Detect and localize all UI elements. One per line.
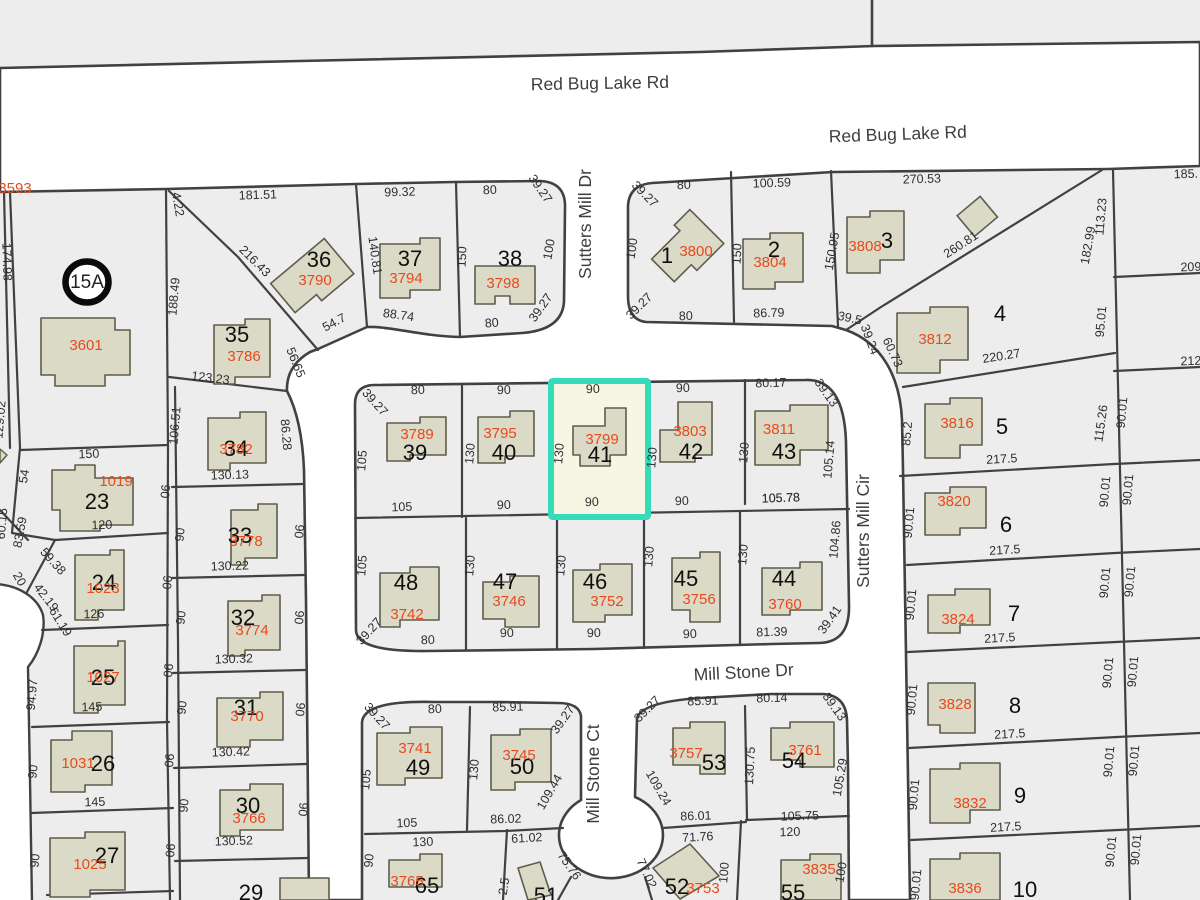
svg-text:1027: 1027: [86, 669, 119, 686]
svg-text:15A: 15A: [70, 272, 104, 293]
svg-text:90: 90: [161, 753, 176, 768]
svg-text:3752: 3752: [590, 593, 623, 610]
svg-text:95.01: 95.01: [1093, 305, 1110, 337]
svg-text:3798: 3798: [486, 275, 519, 292]
svg-text:90.01: 90.01: [1128, 833, 1145, 865]
svg-text:3765: 3765: [390, 873, 423, 890]
svg-text:217.5: 217.5: [994, 726, 1026, 742]
svg-text:3795: 3795: [483, 425, 516, 442]
svg-text:80: 80: [411, 383, 425, 397]
svg-text:3835: 3835: [802, 861, 835, 878]
svg-text:3811: 3811: [763, 421, 795, 438]
svg-text:3803: 3803: [673, 423, 706, 440]
svg-text:3778: 3778: [229, 533, 262, 550]
svg-text:181.51: 181.51: [239, 187, 278, 202]
svg-text:90.01: 90.01: [1125, 655, 1142, 687]
svg-text:90.01: 90.01: [1101, 745, 1118, 777]
svg-text:80: 80: [679, 309, 693, 323]
svg-text:150: 150: [78, 447, 99, 462]
svg-text:81.39: 81.39: [756, 624, 788, 639]
svg-text:86.79: 86.79: [753, 305, 785, 320]
svg-text:130: 130: [641, 546, 657, 568]
svg-text:90: 90: [157, 484, 172, 499]
svg-text:46: 46: [583, 569, 607, 594]
svg-text:105.75: 105.75: [781, 808, 820, 823]
svg-text:85.91: 85.91: [492, 699, 524, 714]
svg-text:217.5: 217.5: [986, 451, 1018, 467]
svg-text:90: 90: [292, 702, 307, 717]
svg-text:90: 90: [176, 798, 191, 813]
svg-text:174.98: 174.98: [0, 243, 15, 282]
svg-text:185.: 185.: [1173, 167, 1198, 182]
svg-text:217.5: 217.5: [989, 542, 1021, 558]
svg-text:90.01: 90.01: [904, 683, 921, 715]
svg-text:94.97: 94.97: [24, 678, 41, 710]
svg-text:90.01: 90.01: [1097, 475, 1114, 507]
svg-text:2.5: 2.5: [496, 876, 513, 896]
svg-text:3745: 3745: [502, 747, 535, 764]
svg-text:3770: 3770: [230, 708, 263, 725]
svg-text:90: 90: [497, 498, 511, 512]
svg-text:90.01: 90.01: [903, 588, 920, 620]
svg-text:90: 90: [160, 663, 175, 678]
svg-text:48: 48: [394, 570, 418, 595]
svg-text:3742: 3742: [390, 606, 423, 623]
svg-text:3746: 3746: [492, 593, 525, 610]
svg-text:130.42: 130.42: [212, 744, 251, 759]
svg-text:90: 90: [587, 626, 601, 640]
svg-text:270.53: 270.53: [903, 171, 942, 186]
svg-text:3816: 3816: [940, 415, 973, 432]
svg-text:1031: 1031: [61, 755, 94, 772]
svg-text:120: 120: [779, 825, 800, 840]
svg-text:90: 90: [676, 381, 690, 395]
svg-text:130.13: 130.13: [211, 467, 250, 482]
svg-text:6: 6: [1000, 512, 1012, 537]
svg-text:90: 90: [27, 853, 42, 868]
svg-text:40: 40: [492, 440, 516, 465]
svg-text:3800: 3800: [679, 243, 712, 260]
svg-text:217.5: 217.5: [984, 630, 1016, 646]
svg-text:105: 105: [354, 555, 370, 577]
svg-text:86.01: 86.01: [680, 808, 712, 823]
svg-text:130: 130: [644, 447, 660, 469]
svg-text:86.02: 86.02: [490, 811, 522, 826]
svg-text:8: 8: [1009, 693, 1021, 718]
svg-text:3820: 3820: [937, 493, 970, 510]
svg-text:90: 90: [162, 843, 177, 858]
svg-text:85.91: 85.91: [687, 693, 719, 708]
svg-text:90: 90: [174, 700, 189, 715]
svg-text:130: 130: [466, 759, 482, 781]
svg-text:90: 90: [361, 853, 376, 868]
svg-text:3808: 3808: [848, 238, 881, 255]
svg-text:7: 7: [1008, 601, 1020, 626]
svg-text:120: 120: [91, 518, 112, 533]
svg-text:80: 80: [677, 178, 691, 192]
svg-text:55: 55: [781, 880, 805, 900]
svg-text:3761: 3761: [788, 742, 821, 759]
svg-text:9: 9: [1014, 783, 1026, 808]
svg-text:130: 130: [736, 442, 752, 464]
svg-text:29: 29: [239, 880, 263, 900]
svg-text:90.01: 90.01: [1103, 835, 1120, 867]
svg-text:90: 90: [25, 764, 40, 779]
svg-text:90: 90: [683, 627, 697, 641]
svg-text:130.52: 130.52: [215, 833, 254, 848]
svg-text:130: 130: [462, 555, 478, 577]
svg-text:209: 209: [1180, 260, 1200, 275]
svg-text:130: 130: [553, 555, 569, 577]
svg-text:3: 3: [881, 228, 893, 253]
svg-text:105: 105: [396, 816, 417, 831]
svg-text:100: 100: [716, 862, 732, 884]
svg-text:3760: 3760: [768, 596, 801, 613]
svg-text:3812: 3812: [918, 331, 951, 348]
svg-text:1019: 1019: [99, 473, 132, 490]
svg-text:100: 100: [624, 237, 641, 260]
svg-text:80: 80: [484, 316, 499, 331]
svg-text:Mill Stone Ct: Mill Stone Ct: [583, 724, 603, 823]
svg-text:3766: 3766: [232, 810, 265, 827]
svg-text:80.17: 80.17: [755, 375, 787, 390]
svg-text:212: 212: [1180, 354, 1200, 369]
svg-text:90: 90: [497, 383, 511, 397]
svg-text:Sutters Mill Dr: Sutters Mill Dr: [575, 169, 595, 279]
svg-text:4: 4: [994, 301, 1006, 326]
svg-text:3756: 3756: [682, 591, 715, 608]
svg-text:1023: 1023: [86, 580, 119, 597]
svg-text:85.2: 85.2: [899, 421, 915, 447]
svg-text:23: 23: [85, 489, 109, 514]
svg-text:3753: 3753: [686, 880, 719, 897]
svg-text:126: 126: [83, 607, 104, 622]
svg-text:130: 130: [412, 835, 433, 850]
svg-text:51: 51: [534, 883, 558, 900]
svg-text:47: 47: [493, 569, 517, 594]
svg-text:130: 130: [735, 544, 751, 566]
svg-text:105: 105: [358, 769, 374, 791]
svg-text:105.78: 105.78: [762, 490, 801, 505]
svg-text:105: 105: [391, 500, 412, 515]
svg-text:130.22: 130.22: [211, 558, 250, 573]
svg-text:90: 90: [172, 527, 187, 542]
svg-text:45: 45: [674, 566, 698, 591]
svg-text:150: 150: [454, 246, 469, 268]
svg-text:Red Bug Lake Rd: Red Bug Lake Rd: [531, 72, 669, 94]
svg-text:80.14: 80.14: [756, 690, 788, 705]
svg-text:39: 39: [403, 440, 427, 465]
svg-text:150: 150: [729, 243, 744, 265]
svg-text:3828: 3828: [938, 696, 971, 713]
svg-text:3799: 3799: [585, 431, 618, 448]
svg-text:54: 54: [16, 468, 32, 484]
svg-text:49: 49: [406, 755, 430, 780]
svg-text:86.28: 86.28: [278, 418, 295, 450]
svg-text:90: 90: [173, 610, 188, 625]
svg-text:3804: 3804: [753, 254, 786, 271]
svg-text:90.01: 90.01: [908, 868, 925, 900]
svg-text:105: 105: [354, 450, 370, 472]
svg-text:80: 80: [428, 702, 442, 716]
svg-text:130: 130: [551, 443, 567, 465]
svg-text:90: 90: [585, 495, 599, 509]
svg-text:3836: 3836: [948, 880, 981, 897]
svg-text:90: 90: [159, 575, 174, 590]
svg-text:130.32: 130.32: [215, 651, 254, 666]
svg-text:99.32: 99.32: [384, 184, 416, 199]
svg-text:130.75: 130.75: [742, 746, 758, 785]
svg-text:217.5: 217.5: [990, 819, 1022, 835]
svg-text:3832: 3832: [953, 795, 986, 812]
svg-text:3774: 3774: [235, 622, 268, 639]
svg-text:36: 36: [307, 247, 331, 272]
svg-text:35: 35: [225, 322, 249, 347]
svg-text:3824: 3824: [941, 611, 974, 628]
svg-text:90: 90: [500, 626, 514, 640]
svg-text:80: 80: [483, 183, 497, 197]
svg-text:90.01: 90.01: [1120, 473, 1137, 505]
svg-text:44: 44: [772, 566, 796, 591]
svg-text:38: 38: [498, 246, 522, 271]
svg-text:53: 53: [702, 750, 726, 775]
svg-text:42: 42: [679, 439, 703, 464]
svg-text:90: 90: [586, 382, 600, 396]
svg-text:80: 80: [421, 633, 435, 647]
svg-text:71.76: 71.76: [682, 829, 714, 845]
svg-text:90: 90: [295, 802, 310, 817]
svg-text:90.01: 90.01: [1100, 656, 1117, 688]
svg-text:1025: 1025: [73, 856, 106, 873]
svg-text:90: 90: [291, 524, 306, 539]
svg-text:3790: 3790: [298, 272, 331, 289]
svg-text:3593: 3593: [0, 180, 32, 197]
svg-text:90: 90: [675, 494, 689, 508]
svg-text:61.02: 61.02: [511, 830, 543, 846]
svg-text:90.01: 90.01: [1122, 565, 1139, 597]
svg-text:3786: 3786: [227, 348, 260, 365]
svg-text:10: 10: [1013, 877, 1037, 900]
svg-text:3789: 3789: [400, 426, 433, 443]
svg-text:90: 90: [291, 610, 306, 625]
svg-text:3741: 3741: [398, 740, 431, 757]
svg-text:3601: 3601: [69, 337, 102, 354]
svg-text:37: 37: [398, 246, 422, 271]
svg-text:Sutters Mill Cir: Sutters Mill Cir: [853, 474, 873, 588]
svg-text:90.01: 90.01: [1114, 396, 1131, 428]
svg-text:100.59: 100.59: [753, 175, 792, 190]
svg-text:90.01: 90.01: [1126, 744, 1143, 776]
svg-text:1: 1: [661, 243, 673, 268]
svg-text:3782: 3782: [219, 441, 252, 458]
svg-text:145: 145: [81, 700, 102, 715]
svg-text:145: 145: [84, 795, 105, 810]
svg-text:3757: 3757: [669, 745, 702, 762]
svg-text:90.01: 90.01: [906, 778, 923, 810]
svg-text:130: 130: [462, 443, 478, 465]
svg-text:5: 5: [996, 414, 1008, 439]
svg-text:90.01: 90.01: [901, 506, 918, 538]
svg-text:43: 43: [772, 439, 796, 464]
svg-text:90.01: 90.01: [1097, 566, 1114, 598]
svg-text:3794: 3794: [389, 270, 422, 287]
